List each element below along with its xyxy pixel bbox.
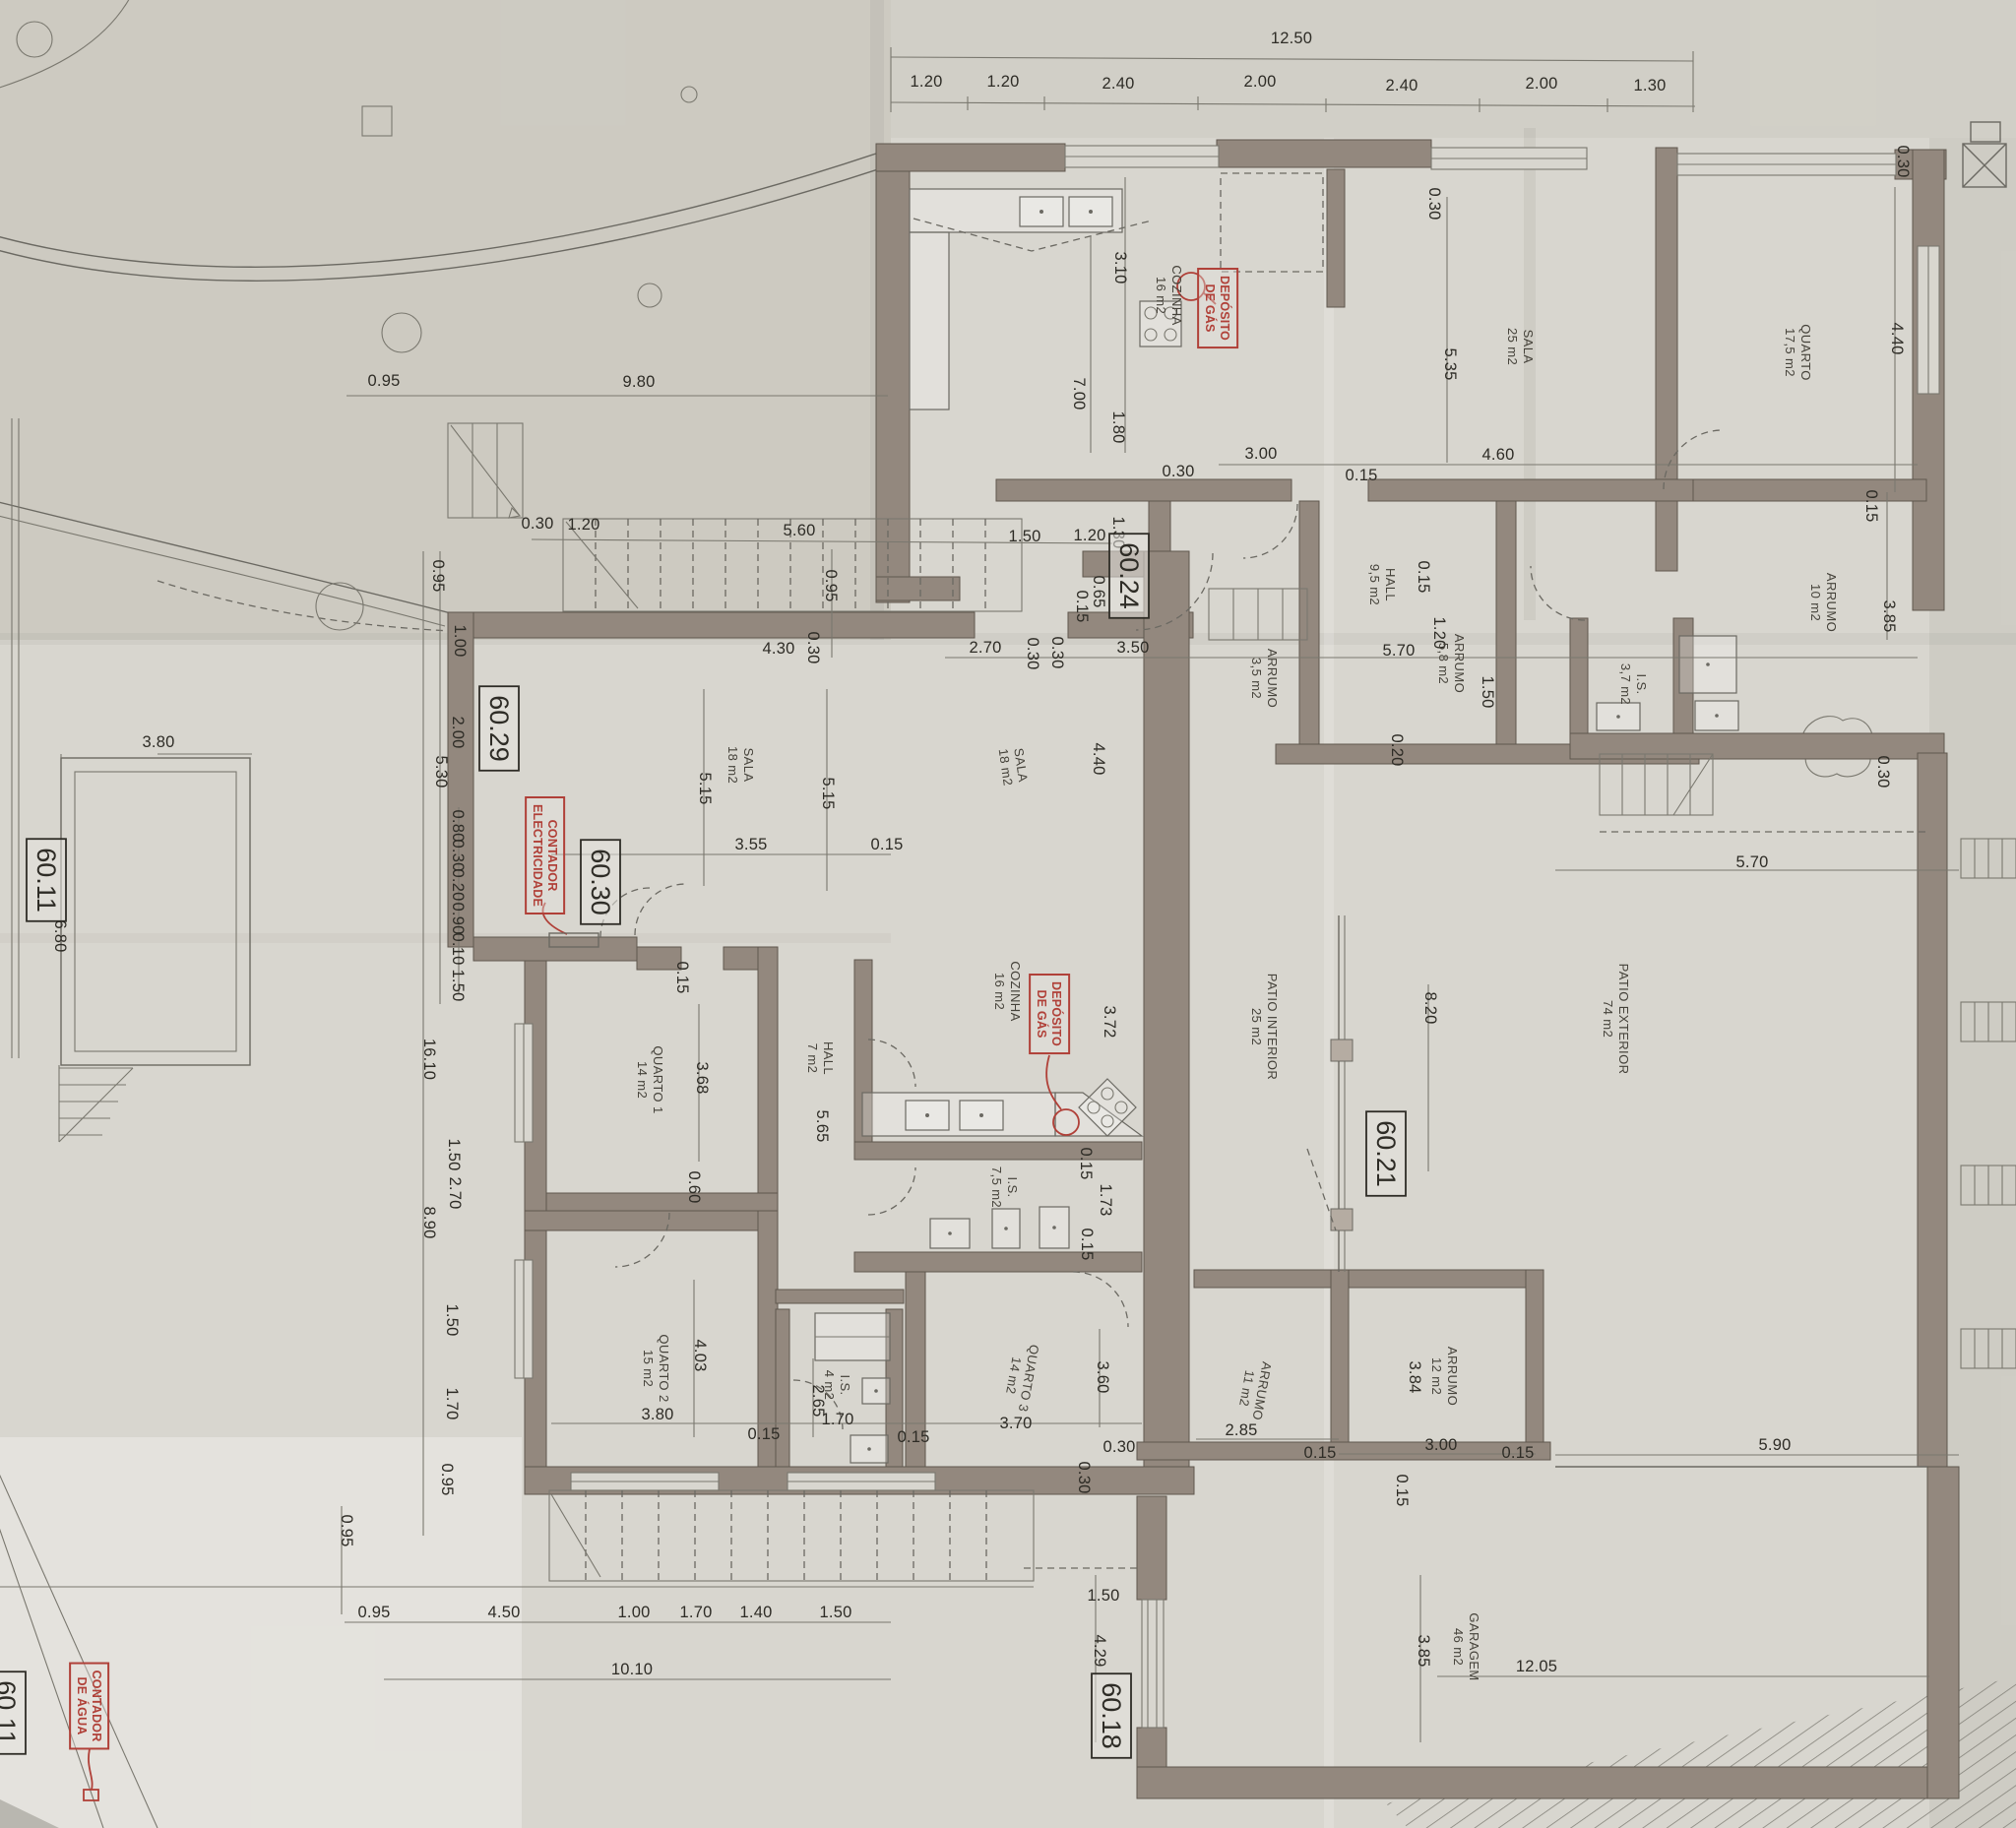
dimension-label: 8.90 — [420, 1207, 438, 1239]
dimension-label: 0.30 — [1048, 637, 1066, 669]
dimension-label: 0.80 — [449, 810, 467, 843]
room-label: HALL9,5 m2 — [1367, 564, 1398, 605]
dimension-label: 2.85 — [1226, 1421, 1258, 1439]
dimension-label: 0.95 — [438, 1464, 456, 1496]
room-label: GARAGEM46 m2 — [1451, 1612, 1481, 1680]
pool-steps — [59, 1065, 133, 1142]
dimension-label: 0.30 — [1894, 146, 1912, 178]
dimension-label: 0.15 — [1304, 1444, 1337, 1462]
elevation-marker-value: 60.11 — [0, 1680, 21, 1745]
dimension-label: 4.50 — [488, 1604, 521, 1621]
dimension-label: 1.70 — [680, 1604, 713, 1621]
dimension-label: 0.15 — [1073, 591, 1091, 623]
dimension-label: 12.50 — [1271, 30, 1312, 47]
dimension-label: 3.85 — [1415, 1635, 1432, 1668]
dimension-label: 0.20 — [1388, 734, 1406, 767]
dimension-label: 0.30 — [522, 515, 554, 533]
dimension-label: 0.20 — [449, 869, 467, 902]
room-label: I.S.3,7 m2 — [1618, 663, 1649, 705]
dimension-label: 1.50 — [1009, 528, 1041, 545]
dimension-label: 1.80 — [1109, 411, 1127, 444]
dimension-label: 0.30 — [1425, 188, 1443, 221]
elevation-marker: 60.21 — [1366, 1111, 1406, 1196]
dimension-label: 1.40 — [740, 1604, 773, 1621]
dimension-label: 1.50 — [445, 1139, 463, 1171]
dimension-label: 1.50 — [1088, 1587, 1120, 1605]
dimension-label: 0.30 — [1024, 638, 1041, 670]
dimension-label: 1.50 — [449, 970, 467, 1002]
dimension-label: 2.00 — [1526, 75, 1558, 93]
dimension-label: 1.50 — [1479, 676, 1496, 709]
dimension-label: 0.15 — [748, 1425, 781, 1443]
dimension-label: 4.40 — [1090, 743, 1107, 776]
dimension-label: 3.55 — [735, 836, 768, 853]
dimension-label: 5.70 — [1383, 642, 1416, 660]
dimension-label: 2.70 — [446, 1177, 464, 1210]
dimension-label: 5.15 — [696, 773, 714, 805]
dimension-label: 0.15 — [1862, 490, 1880, 523]
room-label: QUARTO 314 m2 — [1000, 1341, 1041, 1413]
dimension-label: 0.10 — [449, 933, 467, 966]
dimension-label: 3.70 — [1000, 1415, 1033, 1432]
room-label: SALA18 m2 — [996, 745, 1032, 787]
floor-plan-svg: 12.501.201.202.402.002.402.001.300.303.1… — [0, 0, 2016, 1828]
dimension-label: 2.70 — [970, 639, 1002, 657]
dimension-label: 4.30 — [763, 640, 795, 658]
dimension-label: 1.30 — [1634, 77, 1667, 95]
dimension-label: 0.15 — [1346, 467, 1378, 484]
utility-annotation: CONTADORELECTRICIDADE — [526, 797, 564, 914]
dimension-label: 5.60 — [784, 522, 816, 539]
dimension-label: 4.60 — [1482, 446, 1515, 464]
room-label: ARRUMO11 m2 — [1234, 1357, 1275, 1421]
dimension-label: 2.40 — [1386, 77, 1418, 95]
dimension-label: 0.15 — [1415, 561, 1432, 594]
room-label: HALL7 m2 — [805, 1041, 836, 1075]
elevation-marker-value: 60.30 — [586, 849, 615, 915]
dimension-label: 2.00 — [1244, 73, 1277, 91]
elevation-marker: 60.18 — [1092, 1673, 1131, 1758]
dimension-label: 0.15 — [898, 1428, 930, 1446]
dimension-label: 0.95 — [358, 1604, 391, 1621]
dimension-label: 3.85 — [1880, 600, 1898, 633]
dimension-label: 0.65 — [1090, 576, 1107, 608]
dimension-label: 5.30 — [432, 756, 450, 788]
dimension-label: 16.10 — [420, 1039, 438, 1080]
dimension-label: 4.03 — [691, 1340, 709, 1372]
dimension-label: 3.60 — [1094, 1361, 1111, 1394]
dimension-label: 0.15 — [1502, 1444, 1535, 1462]
dimension-label: 0.30 — [1874, 756, 1892, 788]
dimension-label: 3.80 — [642, 1406, 674, 1423]
dimension-label: 9.80 — [623, 373, 656, 391]
room-label: ARRUMO3,5 m2 — [1249, 649, 1280, 708]
dimension-label: 10.10 — [611, 1661, 653, 1678]
patio-fence — [1331, 915, 1353, 1272]
dimension-label: 8.20 — [1421, 992, 1439, 1025]
room-label: SALA25 m2 — [1505, 328, 1536, 365]
dimension-label: 0.30 — [1163, 463, 1195, 480]
paper-shading — [0, 0, 2016, 1828]
dimension-label: 0.15 — [871, 836, 904, 853]
dimension-label: 1.00 — [451, 625, 469, 658]
stairs-interior-small — [1209, 589, 1307, 640]
dimension-label: 1.50 — [820, 1604, 852, 1621]
room-label: ARRUMO10 m2 — [1808, 573, 1839, 632]
dimension-label: 1.20 — [987, 73, 1020, 91]
utility-annotation-text: CONTADORELECTRICIDADE — [531, 804, 559, 907]
elevation-marker: 60.29 — [479, 686, 519, 771]
dimension-label: 0.15 — [1077, 1148, 1095, 1180]
dimension-label: 6.80 — [51, 920, 69, 953]
dimension-label: 0.15 — [1078, 1229, 1096, 1261]
utility-annotation: CONTADORDE ÁGUA — [70, 1664, 108, 1749]
kitchen-right-house — [910, 173, 1323, 410]
elevation-marker: 60.11 — [0, 1671, 26, 1754]
dimension-label: 5.35 — [1441, 348, 1459, 381]
floor-plan-photo: 12.501.201.202.402.002.402.001.300.303.1… — [0, 0, 2016, 1828]
dimension-label: 2.00 — [449, 717, 467, 749]
elevation-marker: 60.30 — [581, 840, 620, 924]
elevation-marker: 60.24 — [1109, 534, 1149, 618]
room-label: SALA18 m2 — [725, 746, 756, 784]
kitchen-center-house — [862, 1079, 1142, 1136]
dimension-label: 7.00 — [1070, 378, 1088, 410]
room-label: ARRUMO5,8 m2 — [1436, 634, 1467, 693]
dimension-label: 1.73 — [1097, 1184, 1114, 1217]
dimension-label: 3.00 — [1425, 1436, 1458, 1454]
dimension-label: 3.10 — [1111, 252, 1129, 284]
room-label: COZINHA16 m2 — [992, 961, 1023, 1021]
room-label: PATIO EXTERIOR74 m2 — [1601, 964, 1631, 1075]
dimension-label: 0.15 — [673, 962, 691, 994]
dimension-label: 3.00 — [1245, 445, 1278, 463]
dimension-label: 5.65 — [813, 1110, 831, 1143]
dimension-label: 0.95 — [429, 560, 447, 593]
dimension-label: 0.30 — [1103, 1438, 1136, 1456]
room-label: PATIO INTERIOR25 m2 — [1249, 974, 1280, 1080]
dimension-label: 0.30 — [804, 632, 822, 664]
room-label: I.S.7,5 m2 — [989, 1166, 1020, 1208]
dimension-label: 5.15 — [819, 778, 837, 810]
dimension-label: 5.70 — [1736, 853, 1769, 871]
utility-annotation: DEPÓSITODE GÁS — [1030, 975, 1069, 1053]
dimension-label: 0.95 — [338, 1515, 355, 1547]
dimension-label: 2.40 — [1102, 75, 1135, 93]
dimension-label: 1.00 — [618, 1604, 651, 1621]
swimming-pool — [59, 758, 250, 1142]
dimension-label: 1.50 — [443, 1304, 461, 1337]
room-label: QUARTO 215 m2 — [641, 1334, 671, 1402]
dimension-label: 3.72 — [1101, 1006, 1118, 1039]
elevation-marker-value: 60.24 — [1114, 542, 1144, 609]
elevation-marker: 60.11 — [27, 839, 66, 921]
dimension-label: 1.20 — [911, 73, 943, 91]
driveway-hatch — [1386, 1677, 2016, 1828]
dimension-label: 1.20 — [1074, 527, 1106, 544]
utility-annotation-text: CONTADORDE ÁGUA — [75, 1670, 103, 1742]
dimension-label: 0.30 — [1075, 1462, 1093, 1494]
dimension-label: 0.60 — [685, 1171, 703, 1204]
dimension-label: 3.84 — [1406, 1361, 1423, 1394]
room-label: QUARTO17,5 m2 — [1783, 324, 1813, 381]
room-label: QUARTO 114 m2 — [635, 1045, 665, 1113]
dimension-label: 3.80 — [143, 733, 175, 751]
dimension-label: 1.70 — [443, 1388, 461, 1420]
elevation-marker-value: 60.21 — [1371, 1120, 1401, 1187]
dimension-label: 0.15 — [1393, 1475, 1411, 1507]
room-label: I.S.4 m2 — [822, 1370, 852, 1401]
dimension-label: 0.30 — [449, 840, 467, 872]
dimension-label: 5.90 — [1759, 1436, 1792, 1454]
elevation-marker-value: 60.11 — [31, 848, 61, 913]
room-label: ARRUMO12 m2 — [1429, 1347, 1460, 1406]
dimension-label: 12.05 — [1516, 1658, 1557, 1675]
dimension-label: 0.95 — [368, 372, 401, 390]
dimension-label: 1.70 — [822, 1411, 854, 1428]
elevation-marker-value: 60.18 — [1097, 1682, 1126, 1749]
dimension-label: 0.95 — [822, 570, 840, 602]
dimension-label: 4.40 — [1888, 323, 1906, 355]
dimension-label: 1.20 — [568, 516, 600, 534]
dimension-label: 3.50 — [1117, 639, 1150, 657]
dimension-label: 4.29 — [1091, 1635, 1108, 1668]
dimension-label: 0.90 — [449, 903, 467, 935]
elevation-marker-value: 60.29 — [484, 695, 514, 762]
pantry-dashed — [1221, 173, 1323, 272]
utility-annotation: DEPÓSITODE GÁS — [1198, 269, 1237, 347]
dimension-label: 3.68 — [693, 1062, 711, 1095]
